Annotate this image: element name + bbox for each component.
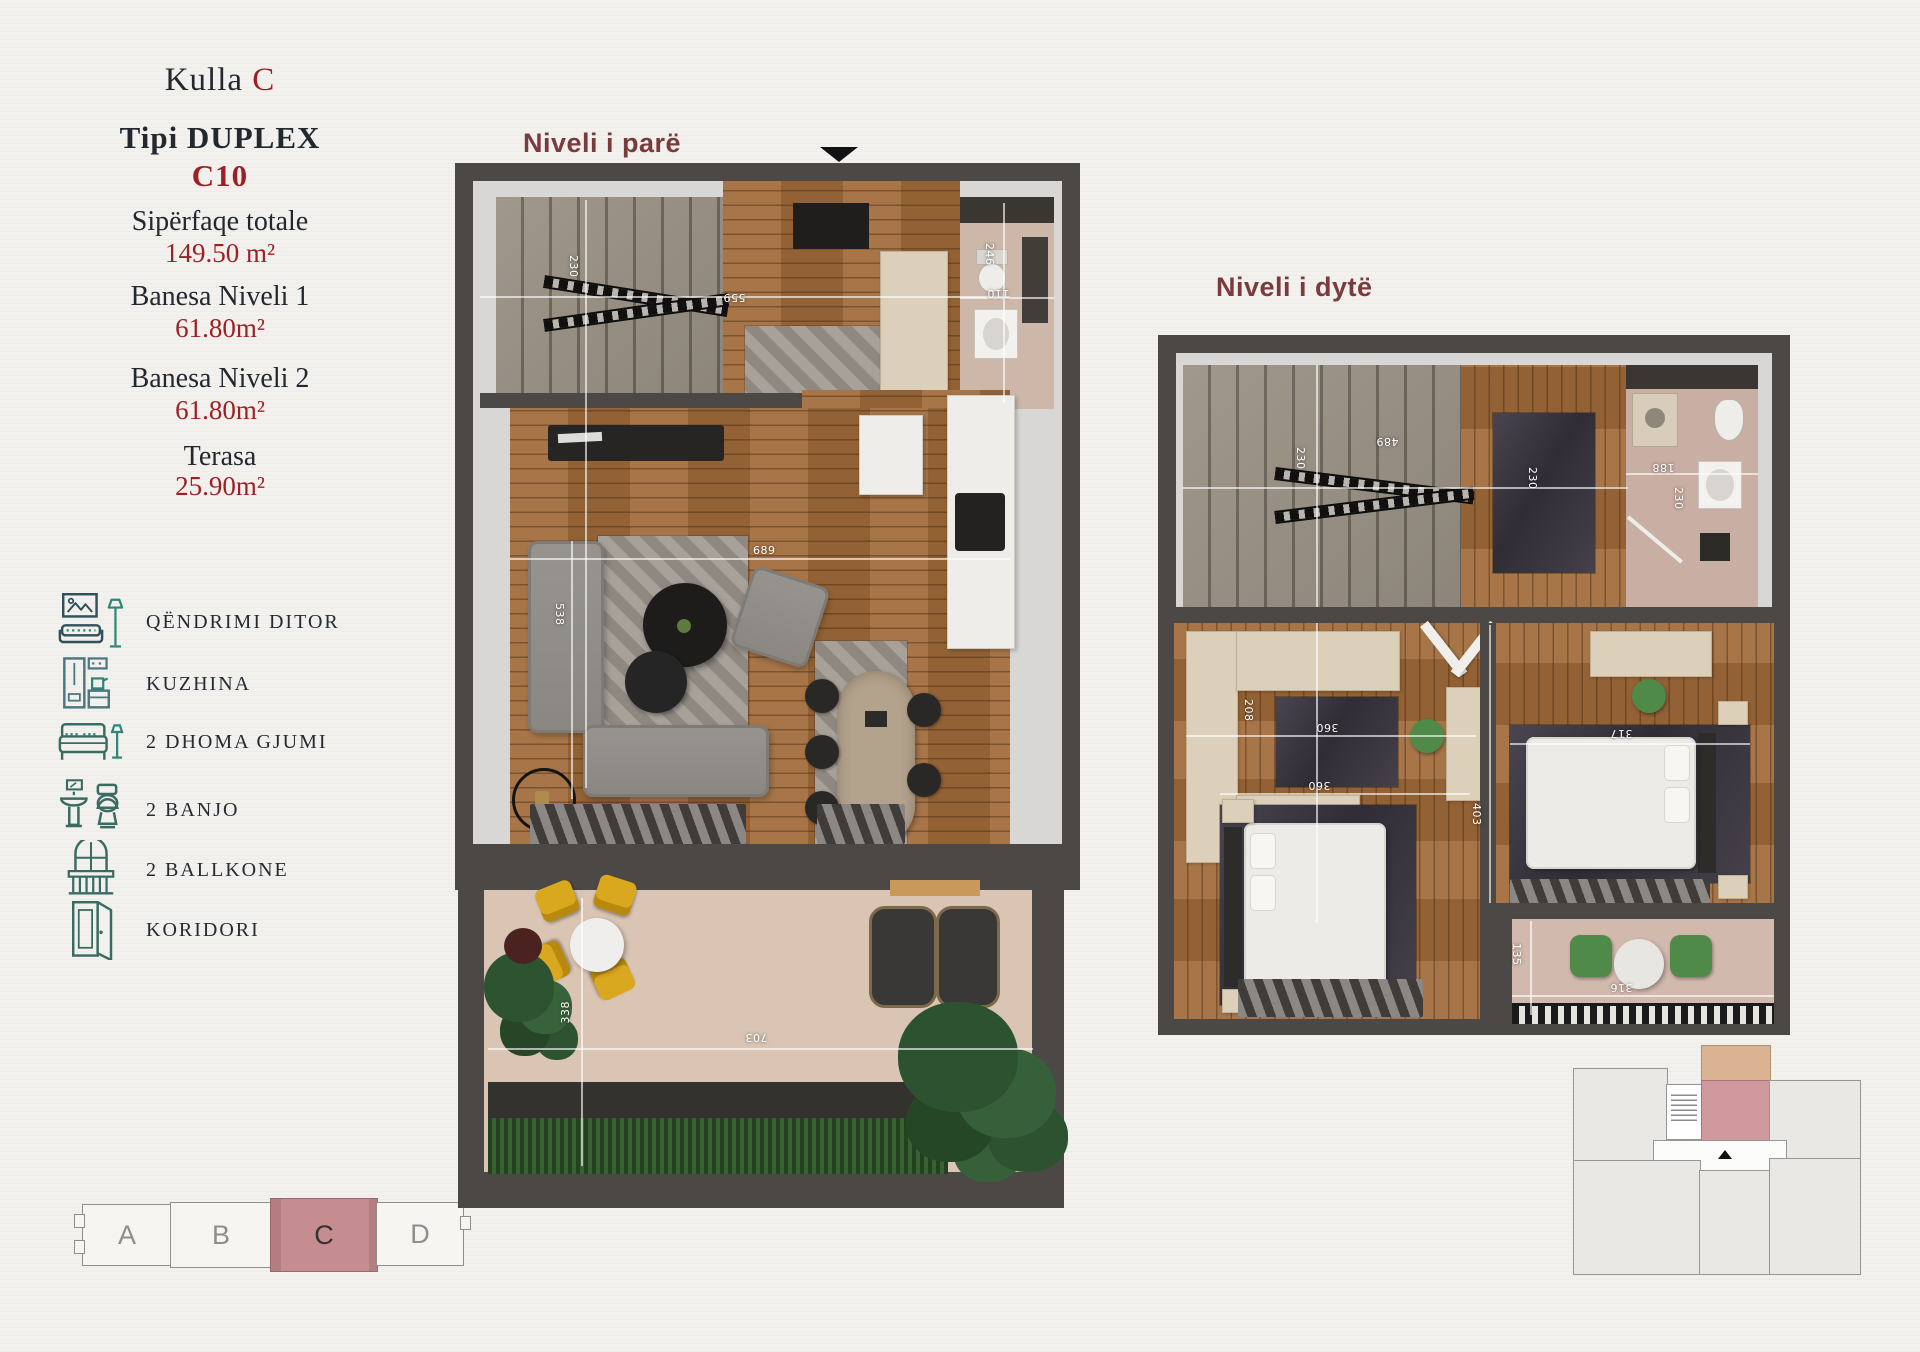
level2-staircase bbox=[1183, 365, 1461, 607]
dimension-label: 110 bbox=[987, 287, 1010, 300]
dimension-label: 208 bbox=[1242, 699, 1255, 722]
dimension-line bbox=[1316, 365, 1318, 607]
coffee-table bbox=[625, 651, 687, 713]
level2-bathroom bbox=[1626, 365, 1758, 607]
bed bbox=[1526, 737, 1696, 869]
door-swing bbox=[1627, 515, 1683, 563]
stat-level1-label: Banesa Niveli 1 bbox=[40, 281, 400, 313]
dimension-label: 338 bbox=[559, 1001, 572, 1024]
kitchen-island bbox=[859, 415, 923, 495]
window-louvers bbox=[1238, 979, 1423, 1017]
dimension-line bbox=[1489, 625, 1491, 903]
stat-level1-value: 61.80m² bbox=[40, 313, 400, 344]
building-block-b: B bbox=[170, 1202, 272, 1268]
stat-total-value: 149.50 m² bbox=[40, 238, 400, 269]
desk bbox=[1590, 631, 1712, 677]
unit-type-code: C10 bbox=[40, 158, 400, 194]
dimension-label: 403 bbox=[1470, 803, 1483, 826]
dimension-line bbox=[1183, 487, 1628, 489]
building-block-b-label: B bbox=[212, 1220, 230, 1251]
level2-balcony bbox=[1512, 919, 1774, 1005]
desk-chair bbox=[1632, 679, 1666, 713]
floorplan-level2: 230 489 230 188 230 208 360 360 317 403 … bbox=[1158, 335, 1790, 1035]
dimension-line bbox=[1220, 793, 1470, 795]
dimension-line bbox=[585, 200, 587, 788]
legend-label-living: QËNDRIMI DITOR bbox=[146, 611, 340, 634]
lounge-chair bbox=[936, 906, 1000, 1008]
floorplan-brochure: Kulla C Tipi DUPLEX C10 Sipërfaqe totale… bbox=[0, 0, 1920, 1352]
dimension-label: 135 bbox=[1510, 943, 1523, 966]
kitchen-icon bbox=[56, 654, 126, 714]
plant-pot bbox=[504, 928, 542, 964]
stat-terrace-label: Terasa bbox=[40, 441, 400, 473]
building-block-c-label: C bbox=[314, 1220, 334, 1251]
dimension-label: 317 bbox=[1610, 727, 1633, 740]
dining-chair bbox=[805, 735, 839, 769]
dimension-label: 230 bbox=[567, 255, 580, 278]
planter-grass bbox=[488, 1118, 948, 1174]
stairs-hatch bbox=[1671, 1091, 1697, 1121]
dimension-label: 246 bbox=[983, 243, 996, 266]
exterior-wall bbox=[455, 844, 1080, 890]
entry-door bbox=[793, 203, 869, 249]
plan2-title: Niveli i dytë bbox=[1216, 272, 1373, 303]
block-c-edge bbox=[271, 1199, 281, 1271]
washing-machine bbox=[1632, 393, 1678, 447]
window-louvers bbox=[530, 804, 746, 844]
legend-label-bedrooms: 2 DHOMA GJUMI bbox=[146, 731, 328, 754]
door-icon bbox=[56, 900, 126, 960]
bath-icon bbox=[56, 778, 126, 842]
bed-icon bbox=[56, 712, 126, 772]
legend: QËNDRIMI DITOR KUZHINA bbox=[56, 592, 416, 972]
dimension-line bbox=[581, 898, 583, 1166]
legend-item-bedrooms: 2 DHOMA GJUMI bbox=[56, 712, 328, 772]
building-strip: A B C D bbox=[68, 1196, 463, 1280]
terrace-bench bbox=[890, 880, 980, 896]
balcony-chair bbox=[1570, 935, 1612, 977]
dimension-line bbox=[1510, 743, 1750, 745]
chair-cushion bbox=[535, 791, 549, 805]
bathroom-shelf bbox=[1022, 237, 1048, 323]
bath-stool bbox=[1700, 533, 1730, 561]
dimension-label: 316 bbox=[1610, 981, 1633, 994]
dimension-label: 559 bbox=[723, 291, 746, 304]
dimension-label: 360 bbox=[1308, 779, 1331, 792]
stat-total-label: Sipërfaqe totale bbox=[40, 206, 400, 238]
legend-item-baths: 2 BANJO bbox=[56, 778, 239, 842]
strip-notch bbox=[74, 1214, 85, 1228]
dimension-line bbox=[488, 1048, 1033, 1050]
interior-wall bbox=[1496, 919, 1512, 1017]
dimension-label: 230 bbox=[1672, 487, 1685, 510]
nightstand bbox=[1222, 799, 1254, 823]
dimension-label: 230 bbox=[1526, 467, 1539, 490]
sink-basin bbox=[983, 318, 1009, 350]
terrace-planter bbox=[488, 1082, 948, 1118]
terrace-table bbox=[570, 918, 624, 972]
dimension-label: 188 bbox=[1652, 461, 1675, 474]
lounge-chair bbox=[869, 906, 937, 1008]
stat-terrace-value: 25.90m² bbox=[40, 471, 400, 502]
legend-item-balconies: 2 BALLKONE bbox=[56, 840, 289, 900]
key-plan-stairwell bbox=[1666, 1084, 1702, 1140]
living-room-icon bbox=[56, 592, 126, 652]
building-block-c-highlighted: C bbox=[270, 1198, 378, 1272]
key-plan-unit bbox=[1573, 1160, 1701, 1275]
legend-label-baths: 2 BANJO bbox=[146, 799, 239, 822]
project-name: Kulla bbox=[165, 62, 243, 98]
key-plan-unit bbox=[1769, 1158, 1861, 1275]
dimension-line bbox=[571, 541, 573, 799]
tv-console bbox=[548, 425, 724, 461]
dimension-line bbox=[1186, 735, 1476, 737]
level1-bathroom bbox=[960, 197, 1054, 409]
bed bbox=[1244, 823, 1386, 991]
table-plant bbox=[677, 619, 691, 633]
dimension-line bbox=[1512, 995, 1774, 997]
key-plan-entrance-icon bbox=[1718, 1150, 1732, 1159]
legend-label-balconies: 2 BALLKONE bbox=[146, 859, 289, 882]
dimension-label: 538 bbox=[553, 603, 566, 626]
desk bbox=[1446, 687, 1482, 801]
dimension-label: 689 bbox=[753, 544, 776, 557]
stat-level2-label: Banesa Niveli 2 bbox=[40, 363, 400, 395]
legend-item-corridor: KORIDORI bbox=[56, 900, 260, 960]
balc ony-chair bbox=[1670, 935, 1712, 977]
cooktop bbox=[955, 493, 1005, 551]
dimension-label: 703 bbox=[745, 1031, 768, 1044]
dimension-line bbox=[1316, 623, 1318, 923]
closet-rug bbox=[1276, 697, 1398, 787]
floorplan-level1: 230 559 246 110 689 538 703 338 bbox=[455, 163, 1083, 1208]
wardrobe bbox=[1236, 631, 1400, 691]
sofa bbox=[583, 725, 769, 797]
sofa bbox=[528, 541, 604, 733]
key-plan-unit bbox=[1699, 1170, 1771, 1275]
plan1-title: Niveli i parë bbox=[523, 128, 681, 159]
nightstand bbox=[1718, 701, 1748, 725]
tower-letter: C bbox=[252, 62, 275, 98]
interior-wall bbox=[480, 393, 802, 408]
sink-vanity bbox=[974, 309, 1018, 359]
tv-decor bbox=[558, 432, 602, 443]
plant bbox=[898, 1002, 1018, 1112]
legend-label-corridor: KORIDORI bbox=[146, 919, 260, 942]
legend-label-kitchen: KUZHINA bbox=[146, 673, 251, 696]
sink-vanity bbox=[1698, 461, 1742, 509]
legend-item-living: QËNDRIMI DITOR bbox=[56, 592, 340, 652]
dimension-label: 360 bbox=[1316, 721, 1339, 734]
building-block-d-label: D bbox=[410, 1219, 430, 1250]
bed-headboard bbox=[1698, 733, 1716, 873]
toilet-icon bbox=[1714, 399, 1744, 441]
page-title: Kulla C bbox=[40, 62, 400, 99]
dining-chair bbox=[907, 693, 941, 727]
dimension-line bbox=[1003, 203, 1005, 403]
nightstand bbox=[1718, 875, 1748, 899]
window-louvers bbox=[817, 804, 905, 844]
dimension-label: 230 bbox=[1294, 447, 1307, 470]
washer-door bbox=[1645, 408, 1665, 428]
balcony-icon bbox=[56, 840, 126, 900]
dimension-line bbox=[1626, 473, 1758, 475]
dining-chair bbox=[907, 763, 941, 797]
hall-rug bbox=[1493, 413, 1595, 573]
interior-wall bbox=[1174, 607, 1774, 623]
dining-chair bbox=[805, 679, 839, 713]
key-plan bbox=[1568, 1040, 1863, 1280]
unit-type-label: Tipi DUPLEX bbox=[40, 120, 400, 156]
stat-level2-value: 61.80m² bbox=[40, 395, 400, 426]
strip-notch bbox=[74, 1240, 85, 1254]
dimension-line bbox=[1530, 921, 1532, 1015]
dimension-label: 489 bbox=[1376, 435, 1399, 448]
bathroom-wall-shelf bbox=[960, 197, 1054, 223]
entrance-arrow-icon bbox=[820, 147, 858, 162]
building-block-a-label: A bbox=[118, 1220, 136, 1251]
bathroom-wall bbox=[1626, 365, 1758, 389]
legend-item-kitchen: KUZHINA bbox=[56, 654, 251, 714]
key-plan-terrace-highlight bbox=[1701, 1045, 1771, 1082]
kitchen-tall-cabinet bbox=[880, 251, 948, 395]
level1-staircase bbox=[496, 197, 723, 393]
bed-headboard bbox=[1224, 827, 1242, 987]
interior-wall bbox=[1496, 903, 1774, 919]
table-decor bbox=[865, 711, 887, 727]
window-louvers bbox=[1510, 879, 1710, 903]
strip-notch bbox=[460, 1216, 471, 1230]
balcony-railing bbox=[1512, 1003, 1774, 1024]
building-block-d: D bbox=[376, 1202, 464, 1266]
dimension-line bbox=[510, 558, 1010, 560]
building-block-a: A bbox=[82, 1204, 172, 1266]
